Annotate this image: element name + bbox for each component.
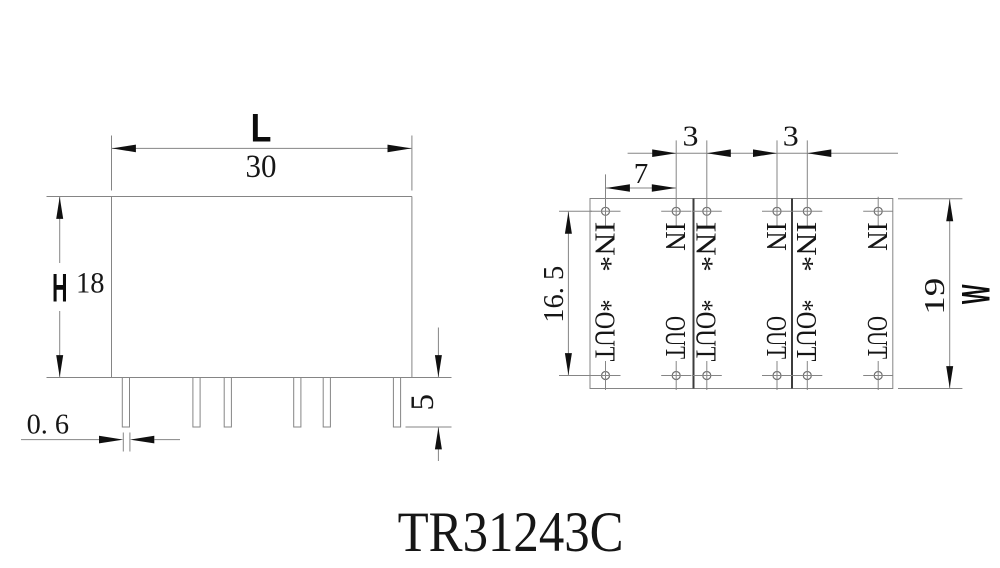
svg-text:H: H [52,265,67,310]
svg-text:*OUT: *OUT [687,300,722,362]
svg-text:3: 3 [783,121,799,153]
svg-text:*OUT: *OUT [787,300,822,362]
svg-text:19: 19 [919,278,951,315]
svg-text:3: 3 [683,121,699,153]
svg-text:OUT: OUT [861,316,893,359]
svg-text:16. 5: 16. 5 [538,266,570,323]
svg-text:IN*: IN* [687,222,722,272]
svg-text:IN: IN [760,222,792,251]
svg-text:5: 5 [405,394,441,411]
svg-text:W: W [953,284,998,304]
svg-text:L: L [251,105,272,150]
svg-text:OUT: OUT [659,316,691,359]
svg-text:30: 30 [246,149,277,185]
svg-text:IN*: IN* [585,222,620,272]
svg-text:*OUT: *OUT [585,300,620,362]
svg-text:7: 7 [634,158,649,190]
svg-text:OUT: OUT [760,316,792,359]
svg-text:IN: IN [861,222,893,251]
svg-text:18: 18 [76,266,105,299]
svg-text:IN: IN [659,222,691,251]
svg-text:IN*: IN* [787,222,822,272]
svg-text:0. 6: 0. 6 [27,409,70,441]
svg-text:TR31243C: TR31243C [398,501,624,564]
